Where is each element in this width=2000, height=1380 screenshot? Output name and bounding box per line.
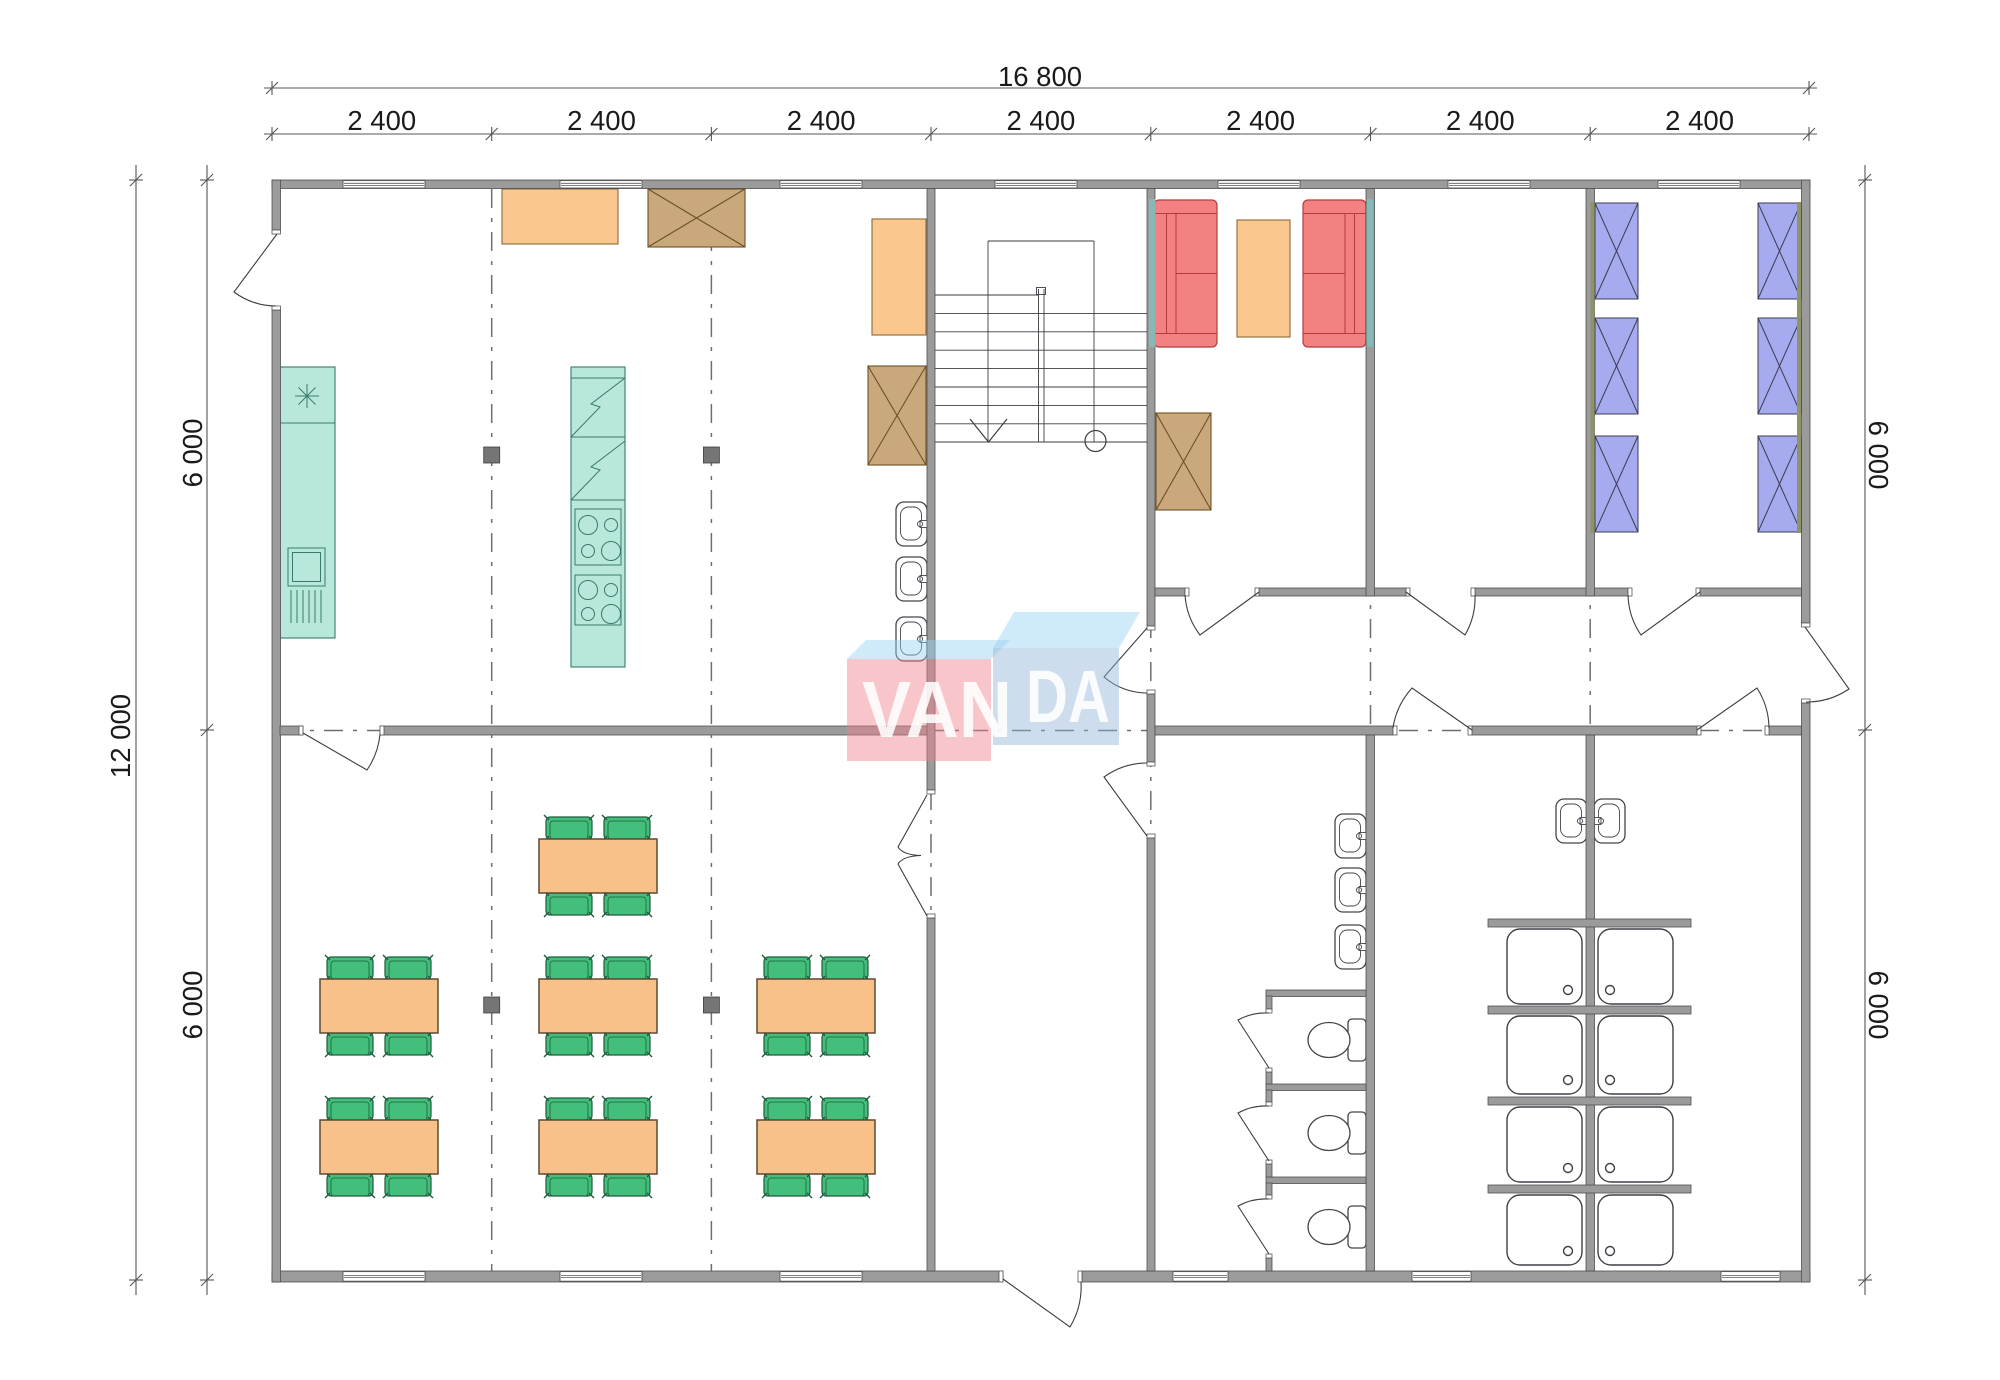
svg-text:2 400: 2 400 [1665,105,1734,136]
svg-text:6 000: 6 000 [177,419,208,488]
svg-text:16 800: 16 800 [998,61,1082,92]
svg-text:6 000: 6 000 [1863,971,1894,1040]
svg-text:DA: DA [1026,655,1110,738]
svg-text:2 400: 2 400 [787,105,856,136]
svg-text:2 400: 2 400 [347,105,416,136]
svg-text:2 400: 2 400 [1446,105,1515,136]
svg-text:2 400: 2 400 [1226,105,1295,136]
svg-text:VAN: VAN [862,665,1012,754]
svg-text:2 400: 2 400 [567,105,636,136]
svg-text:12 000: 12 000 [105,694,136,778]
svg-text:2 400: 2 400 [1006,105,1075,136]
svg-text:6 000: 6 000 [177,971,208,1040]
svg-text:6 000: 6 000 [1863,421,1894,490]
